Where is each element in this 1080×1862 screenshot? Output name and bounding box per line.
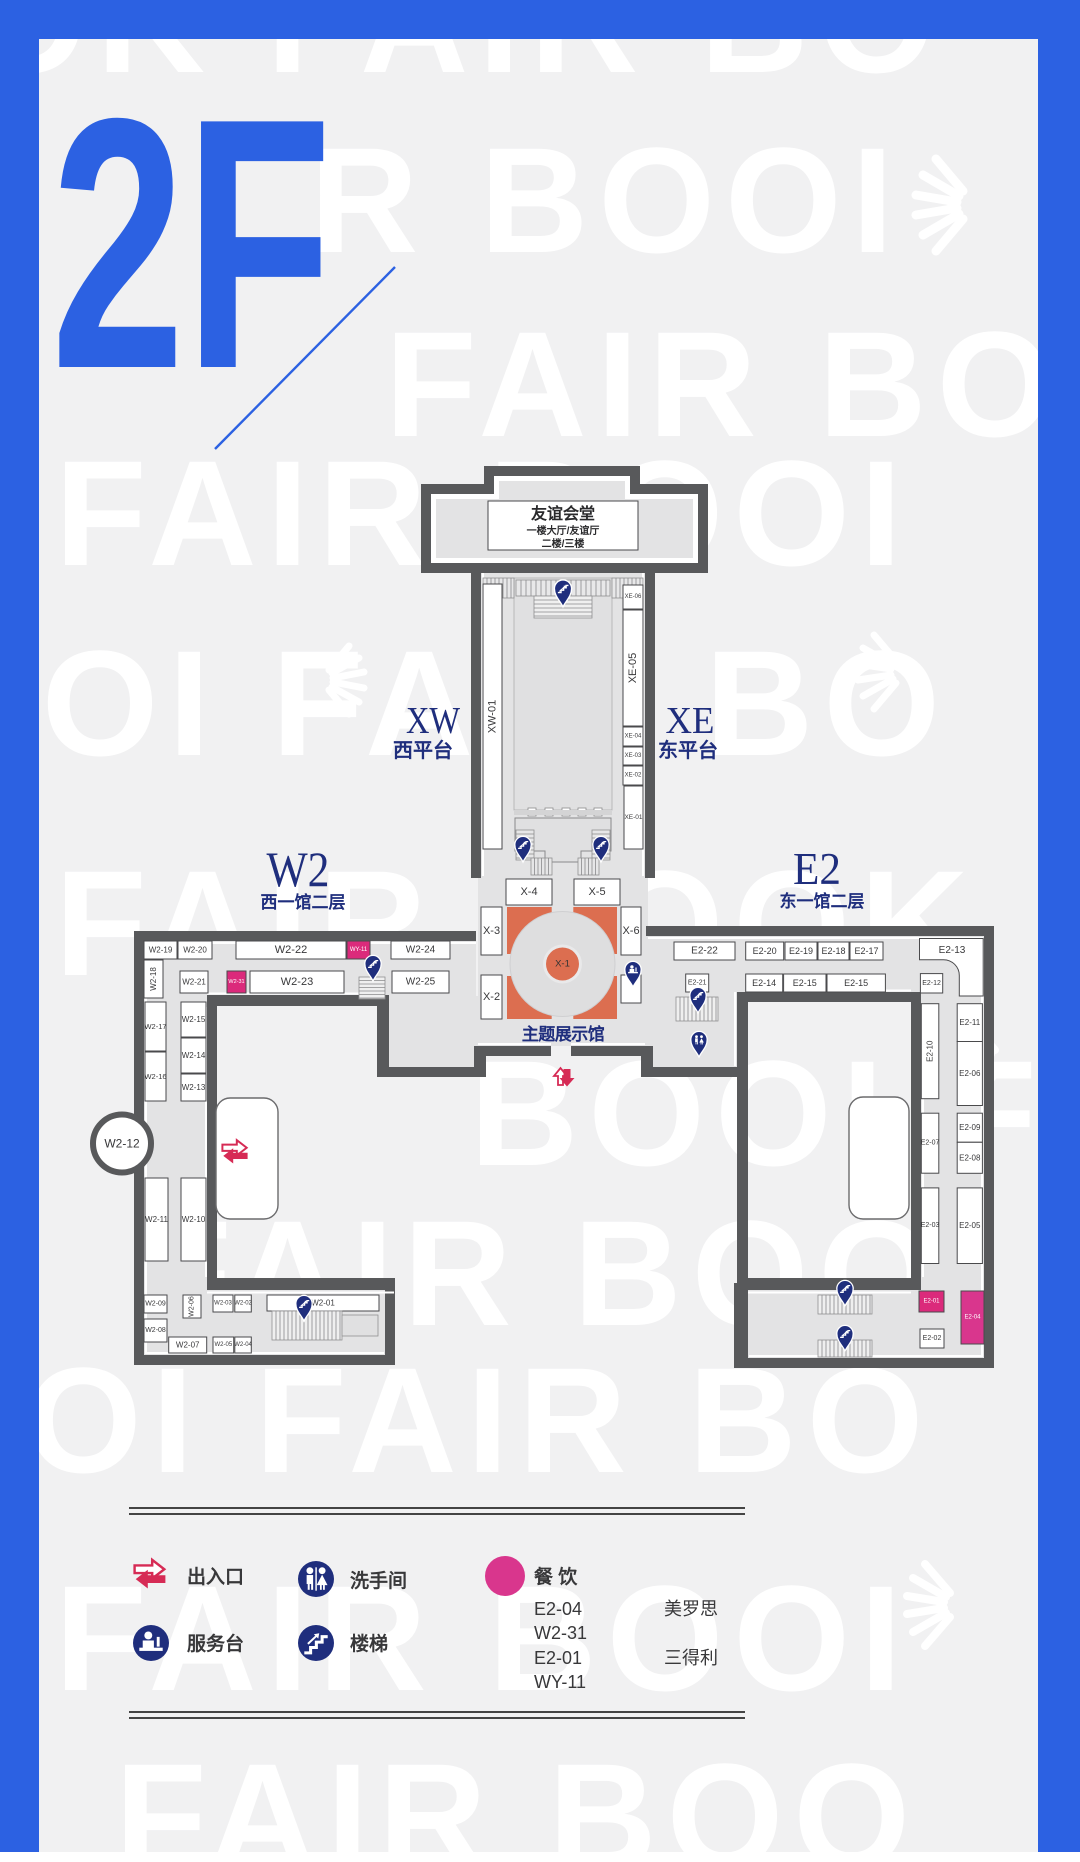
svg-text:XW: XW [406, 700, 460, 742]
svg-text:X-1: X-1 [555, 959, 570, 970]
svg-text:W2-07: W2-07 [176, 1341, 200, 1350]
svg-text:E2-14: E2-14 [752, 978, 776, 988]
svg-text:X-2: X-2 [483, 991, 500, 1003]
svg-text:WY-11: WY-11 [534, 1672, 586, 1692]
svg-text:E2-21: E2-21 [688, 980, 707, 987]
svg-text:XE: XE [666, 700, 715, 742]
svg-text:E2-01: E2-01 [923, 1299, 940, 1305]
svg-text:E2-17: E2-17 [854, 946, 878, 956]
svg-text:E2-12: E2-12 [922, 980, 941, 987]
svg-text:W2-05: W2-05 [215, 1342, 233, 1348]
svg-text:X-5: X-5 [588, 886, 605, 898]
svg-text:W2-01: W2-01 [311, 1299, 335, 1308]
svg-text:W2-25: W2-25 [406, 977, 436, 988]
svg-text:东平台: 东平台 [658, 738, 718, 762]
svg-text:西平台: 西平台 [393, 738, 453, 762]
svg-text:W2-21: W2-21 [182, 978, 206, 987]
svg-text:XE-02: XE-02 [625, 773, 642, 779]
svg-text:2F: 2F [51, 44, 332, 443]
svg-text:W2-31: W2-31 [534, 1623, 587, 1643]
svg-text:E2-18: E2-18 [821, 946, 845, 956]
svg-text:XE-04: XE-04 [625, 734, 642, 740]
svg-text:FAIR BOOI: FAIR BOOI [55, 1554, 912, 1722]
svg-text:E2-22: E2-22 [691, 946, 718, 957]
svg-text:E2-05: E2-05 [959, 1221, 981, 1230]
svg-text:楼梯: 楼梯 [350, 1632, 388, 1655]
svg-text:E2-02: E2-02 [923, 1335, 942, 1342]
svg-text:E2-15: E2-15 [793, 978, 817, 988]
svg-text:餐 饮: 餐 饮 [534, 1565, 578, 1588]
svg-text:出入口: 出入口 [187, 1565, 244, 1588]
svg-text:W2-31: W2-31 [228, 979, 244, 985]
svg-text:W2-18: W2-18 [149, 967, 158, 991]
svg-text:W2-24: W2-24 [406, 945, 436, 956]
svg-text:X-4: X-4 [520, 886, 537, 898]
svg-text:XE-03: XE-03 [625, 753, 642, 759]
svg-text:W2-02: W2-02 [234, 1301, 252, 1307]
svg-text:E2-01: E2-01 [534, 1648, 582, 1668]
svg-text:E2-13: E2-13 [939, 945, 966, 956]
svg-text:W2-14: W2-14 [182, 1051, 206, 1060]
svg-text:西一馆二层: 西一馆二层 [261, 892, 346, 912]
svg-text:W2-09: W2-09 [145, 1301, 166, 1308]
svg-text:W2-08: W2-08 [145, 1327, 166, 1334]
svg-text:主题展示馆: 主题展示馆 [522, 1024, 605, 1044]
svg-text:一楼大厅/友谊厅: 一楼大厅/友谊厅 [527, 524, 600, 537]
svg-text:E2-03: E2-03 [921, 1222, 940, 1229]
svg-text:W2-03: W2-03 [214, 1301, 232, 1307]
svg-text:XE-06: XE-06 [625, 594, 642, 600]
svg-text:美罗思: 美罗思 [664, 1599, 718, 1619]
svg-text:服务台: 服务台 [187, 1632, 244, 1655]
svg-text:W2-17: W2-17 [144, 1022, 166, 1031]
svg-text:W2-04: W2-04 [234, 1342, 252, 1348]
svg-text:W2-12: W2-12 [104, 1137, 140, 1151]
svg-text:WY-11: WY-11 [350, 947, 368, 953]
svg-text:W2-16: W2-16 [144, 1072, 166, 1081]
svg-text:W2-10: W2-10 [182, 1215, 206, 1224]
svg-text:E2-09: E2-09 [959, 1123, 981, 1132]
svg-text:W2-13: W2-13 [182, 1083, 206, 1092]
svg-text:W2-11: W2-11 [145, 1215, 169, 1224]
svg-text:XE-01: XE-01 [624, 814, 642, 821]
svg-text:W2-06: W2-06 [189, 1296, 196, 1317]
svg-text:W2: W2 [267, 841, 330, 897]
svg-text:E2: E2 [793, 844, 841, 894]
svg-text:友谊会堂: 友谊会堂 [531, 504, 595, 523]
svg-text:W2-22: W2-22 [275, 944, 307, 956]
svg-text:E2-19: E2-19 [789, 946, 813, 956]
svg-text:洗手间: 洗手间 [350, 1569, 407, 1592]
svg-text:E2-04: E2-04 [534, 1599, 582, 1619]
svg-text:E2-10: E2-10 [926, 1040, 935, 1062]
svg-text:X-3: X-3 [483, 925, 500, 937]
svg-text:FAIR BOO: FAIR BOO [115, 1732, 920, 1857]
svg-text:E2-20: E2-20 [753, 946, 777, 956]
svg-text:E2-11: E2-11 [959, 1018, 980, 1027]
svg-text:E2-06: E2-06 [959, 1069, 981, 1078]
svg-text:W2-15: W2-15 [182, 1015, 206, 1024]
svg-text:二楼/三楼: 二楼/三楼 [542, 537, 585, 550]
svg-text:W2-23: W2-23 [281, 976, 313, 988]
svg-text:E2-04: E2-04 [964, 1315, 981, 1321]
svg-text:XE-05: XE-05 [627, 653, 639, 684]
svg-text:三得利: 三得利 [664, 1648, 718, 1668]
svg-text:XW-01: XW-01 [487, 700, 499, 733]
svg-text:R BOOI: R BOOI [310, 116, 903, 284]
svg-text:E2-07: E2-07 [921, 1140, 940, 1147]
svg-text:E2-08: E2-08 [959, 1153, 981, 1162]
svg-text:东一馆二层: 东一馆二层 [780, 891, 865, 911]
svg-text:W2-19: W2-19 [149, 946, 173, 955]
svg-text:X-6: X-6 [622, 925, 639, 937]
svg-text:E2-15: E2-15 [844, 978, 868, 988]
svg-text:W2-20: W2-20 [183, 946, 207, 955]
